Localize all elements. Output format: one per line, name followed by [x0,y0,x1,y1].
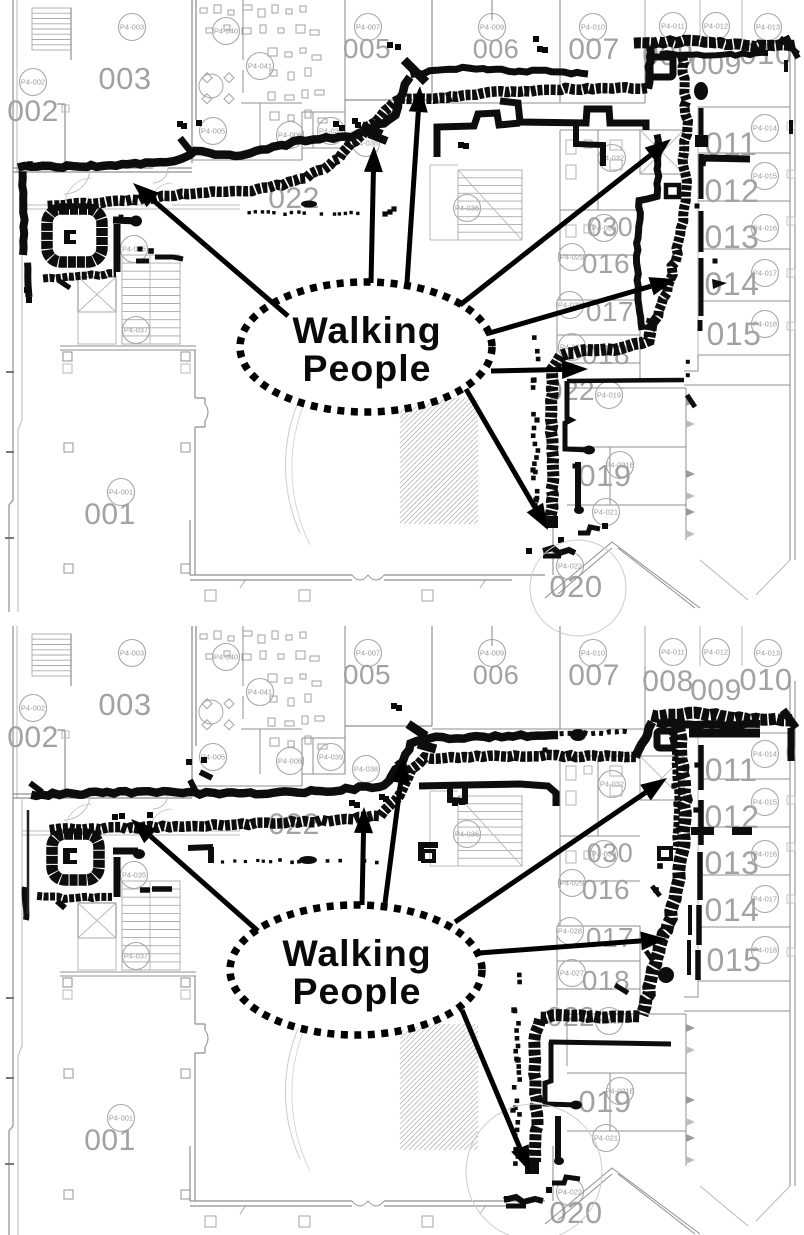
svg-text:Walking: Walking [292,309,441,351]
svg-text:People: People [303,347,432,389]
svg-text:Walking: Walking [282,932,431,974]
svg-text:People: People [293,970,422,1012]
